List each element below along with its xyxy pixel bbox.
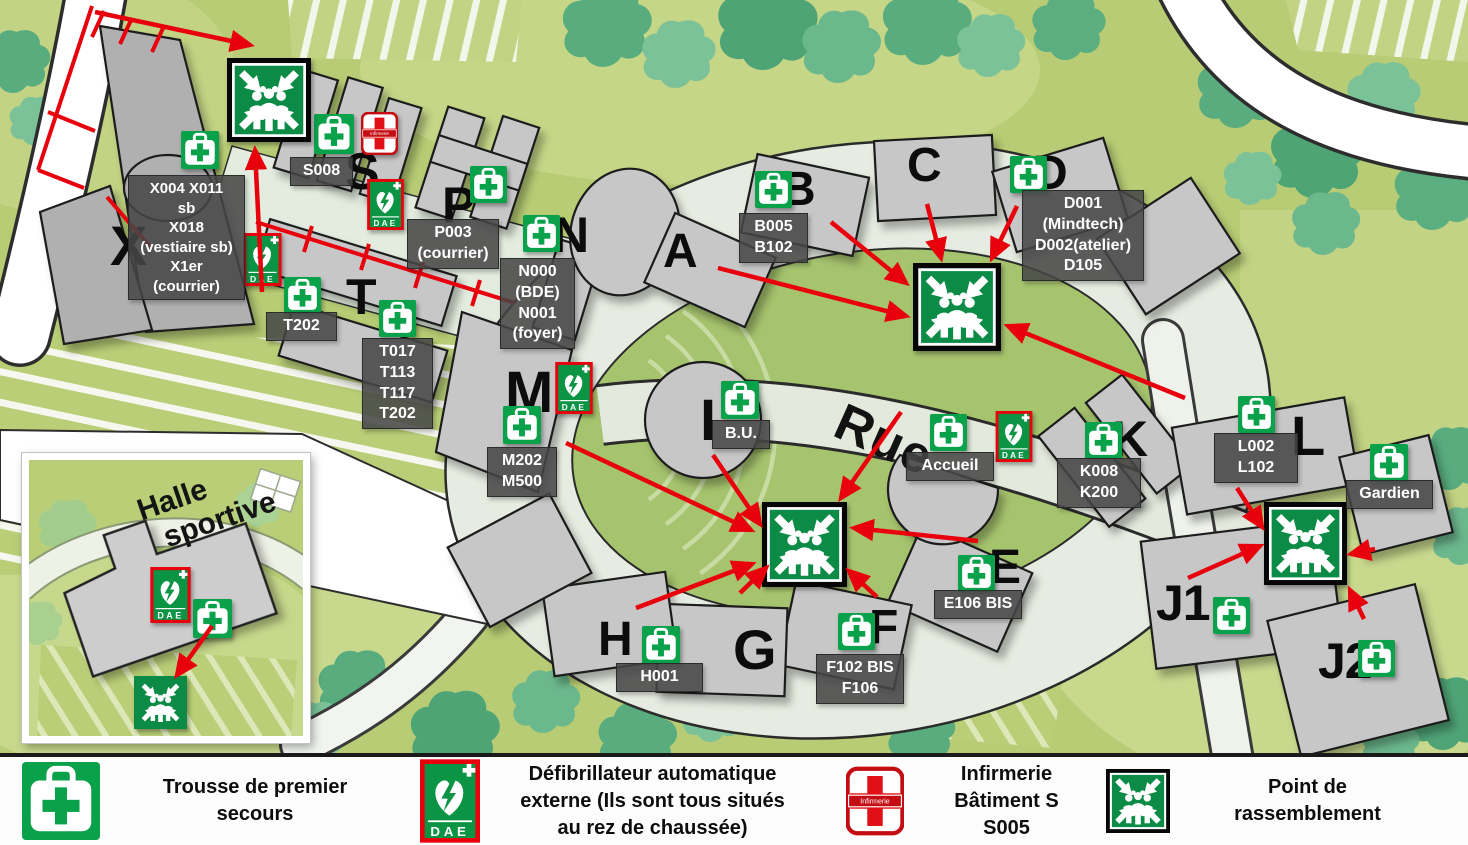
legend-label-line: secours xyxy=(100,801,410,828)
first-aid-icon xyxy=(22,761,100,841)
assembly-icon xyxy=(1106,758,1170,844)
legend-label-line: Défibrillateur automatique xyxy=(480,761,825,788)
legend-item-assembly: Point derassemblement xyxy=(1106,757,1445,845)
dae-icon xyxy=(420,758,480,844)
campus-safety-map: DAE Infirmerie xyxy=(0,0,1468,845)
legend-label-line: Trousse de premier xyxy=(100,774,410,801)
infirmerie-icon xyxy=(846,761,904,841)
parking-lot-north xyxy=(288,0,522,62)
legend-label-line: externe (Ils sont tous situés xyxy=(480,788,825,815)
legend-item-infirmerie: InfirmerieBâtiment SS005 xyxy=(846,757,1109,845)
legend-label: Point derassemblement xyxy=(1170,774,1445,828)
legend-item-dae: Défibrillateur automatiqueexterne (Ils s… xyxy=(420,757,825,845)
legend-label-line: S005 xyxy=(904,815,1109,842)
legend-label-line: Infirmerie xyxy=(904,761,1109,788)
legend-label-line: rassemblement xyxy=(1170,801,1445,828)
legend-item-first-aid: Trousse de premiersecours xyxy=(22,757,410,845)
map-legend: Trousse de premiersecoursDéfibrillateur … xyxy=(0,753,1468,845)
map-area: DAE Infirmerie xyxy=(0,0,1468,753)
legend-label: Défibrillateur automatiqueexterne (Ils s… xyxy=(480,761,825,842)
legend-label-line: Point de xyxy=(1170,774,1445,801)
legend-label: Trousse de premiersecours xyxy=(100,774,410,828)
legend-label-line: au rez de chaussée) xyxy=(480,815,825,842)
legend-label: InfirmerieBâtiment SS005 xyxy=(904,761,1109,842)
inset-halle-sportive: Halle sportive xyxy=(22,453,310,743)
legend-label-line: Bâtiment S xyxy=(904,788,1109,815)
